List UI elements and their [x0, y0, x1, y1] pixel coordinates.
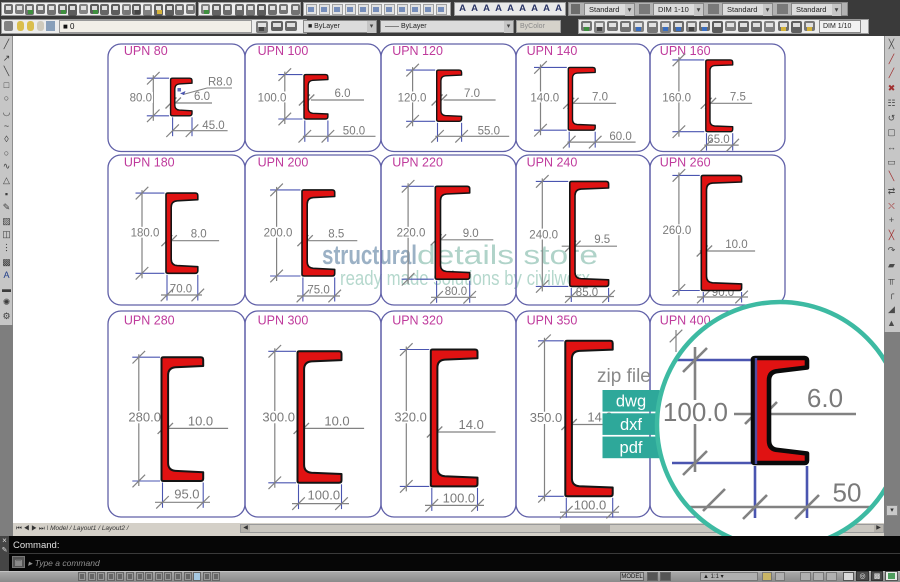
- svg-text:UPN 220: UPN 220: [392, 156, 443, 170]
- svg-text:100.0: 100.0: [443, 490, 476, 505]
- svg-text:UPN 200: UPN 200: [258, 156, 309, 170]
- svg-text:pdf: pdf: [620, 439, 643, 457]
- svg-text:UPN 400: UPN 400: [660, 313, 711, 327]
- svg-text:320.0: 320.0: [394, 410, 427, 425]
- svg-text:dwg: dwg: [616, 393, 646, 411]
- svg-text:UPN 240: UPN 240: [527, 156, 578, 170]
- svg-text:180.0: 180.0: [131, 228, 160, 240]
- svg-text:7.0: 7.0: [592, 91, 608, 103]
- svg-text:9.5: 9.5: [594, 234, 610, 246]
- svg-text:10.0: 10.0: [188, 413, 213, 428]
- svg-text:UPN 140: UPN 140: [527, 44, 578, 58]
- svg-text:55.0: 55.0: [478, 125, 500, 137]
- svg-text:UPN 120: UPN 120: [392, 44, 443, 58]
- svg-text:70.0: 70.0: [170, 284, 192, 296]
- svg-text:75.0: 75.0: [307, 285, 329, 297]
- svg-text:10.0: 10.0: [324, 413, 349, 428]
- svg-text:100.0: 100.0: [258, 92, 287, 104]
- svg-text:14.0: 14.0: [459, 417, 484, 432]
- svg-text:7.0: 7.0: [464, 88, 480, 100]
- svg-text:80.0: 80.0: [130, 93, 152, 105]
- svg-text:structural: structural: [322, 240, 417, 270]
- svg-text:10.0: 10.0: [725, 239, 747, 251]
- svg-text:50: 50: [833, 478, 862, 508]
- svg-text:9.0: 9.0: [463, 228, 479, 240]
- svg-text:UPN 80: UPN 80: [124, 44, 168, 58]
- svg-text:UPN 180: UPN 180: [124, 156, 175, 170]
- svg-text:UPN 260: UPN 260: [660, 156, 711, 170]
- svg-text:UPN 350: UPN 350: [527, 313, 578, 327]
- svg-text:UPN 320: UPN 320: [392, 313, 443, 327]
- svg-text:60.0: 60.0: [609, 131, 631, 143]
- svg-text:6.0: 6.0: [807, 383, 843, 413]
- svg-text:350.0: 350.0: [530, 410, 563, 425]
- svg-text:100.0: 100.0: [574, 498, 607, 513]
- svg-text:95.0: 95.0: [174, 486, 199, 501]
- svg-text:85.0: 85.0: [576, 287, 598, 299]
- svg-text:200.0: 200.0: [264, 228, 293, 240]
- svg-text:dxf: dxf: [620, 416, 642, 434]
- svg-text:160.0: 160.0: [662, 92, 691, 104]
- svg-text:UPN 300: UPN 300: [258, 313, 309, 327]
- svg-text:280.0: 280.0: [128, 410, 161, 425]
- svg-text:6.0: 6.0: [335, 88, 351, 100]
- svg-text:8.5: 8.5: [328, 229, 344, 241]
- svg-text:240.0: 240.0: [529, 229, 558, 241]
- svg-text:65.0: 65.0: [707, 134, 729, 146]
- svg-text:120.0: 120.0: [398, 92, 427, 104]
- svg-text:45.0: 45.0: [202, 120, 224, 132]
- svg-text:6.0: 6.0: [194, 91, 210, 103]
- svg-text:UPN 160: UPN 160: [660, 44, 711, 58]
- svg-text:260.0: 260.0: [663, 225, 692, 237]
- svg-text:100.0: 100.0: [308, 487, 341, 502]
- svg-text:80.0: 80.0: [445, 286, 467, 298]
- svg-text:220.0: 220.0: [397, 228, 426, 240]
- svg-text:UPN 100: UPN 100: [258, 44, 309, 58]
- svg-text:7.5: 7.5: [730, 91, 746, 103]
- svg-text:8.0: 8.0: [191, 229, 207, 241]
- svg-text:zip file: zip file: [597, 366, 651, 387]
- svg-text:100.0: 100.0: [663, 397, 728, 427]
- svg-text:UPN 280: UPN 280: [124, 313, 175, 327]
- svg-text:R8.0: R8.0: [208, 77, 232, 89]
- svg-text:140.0: 140.0: [530, 92, 559, 104]
- svg-text:300.0: 300.0: [262, 410, 295, 425]
- svg-text:50.0: 50.0: [343, 125, 365, 137]
